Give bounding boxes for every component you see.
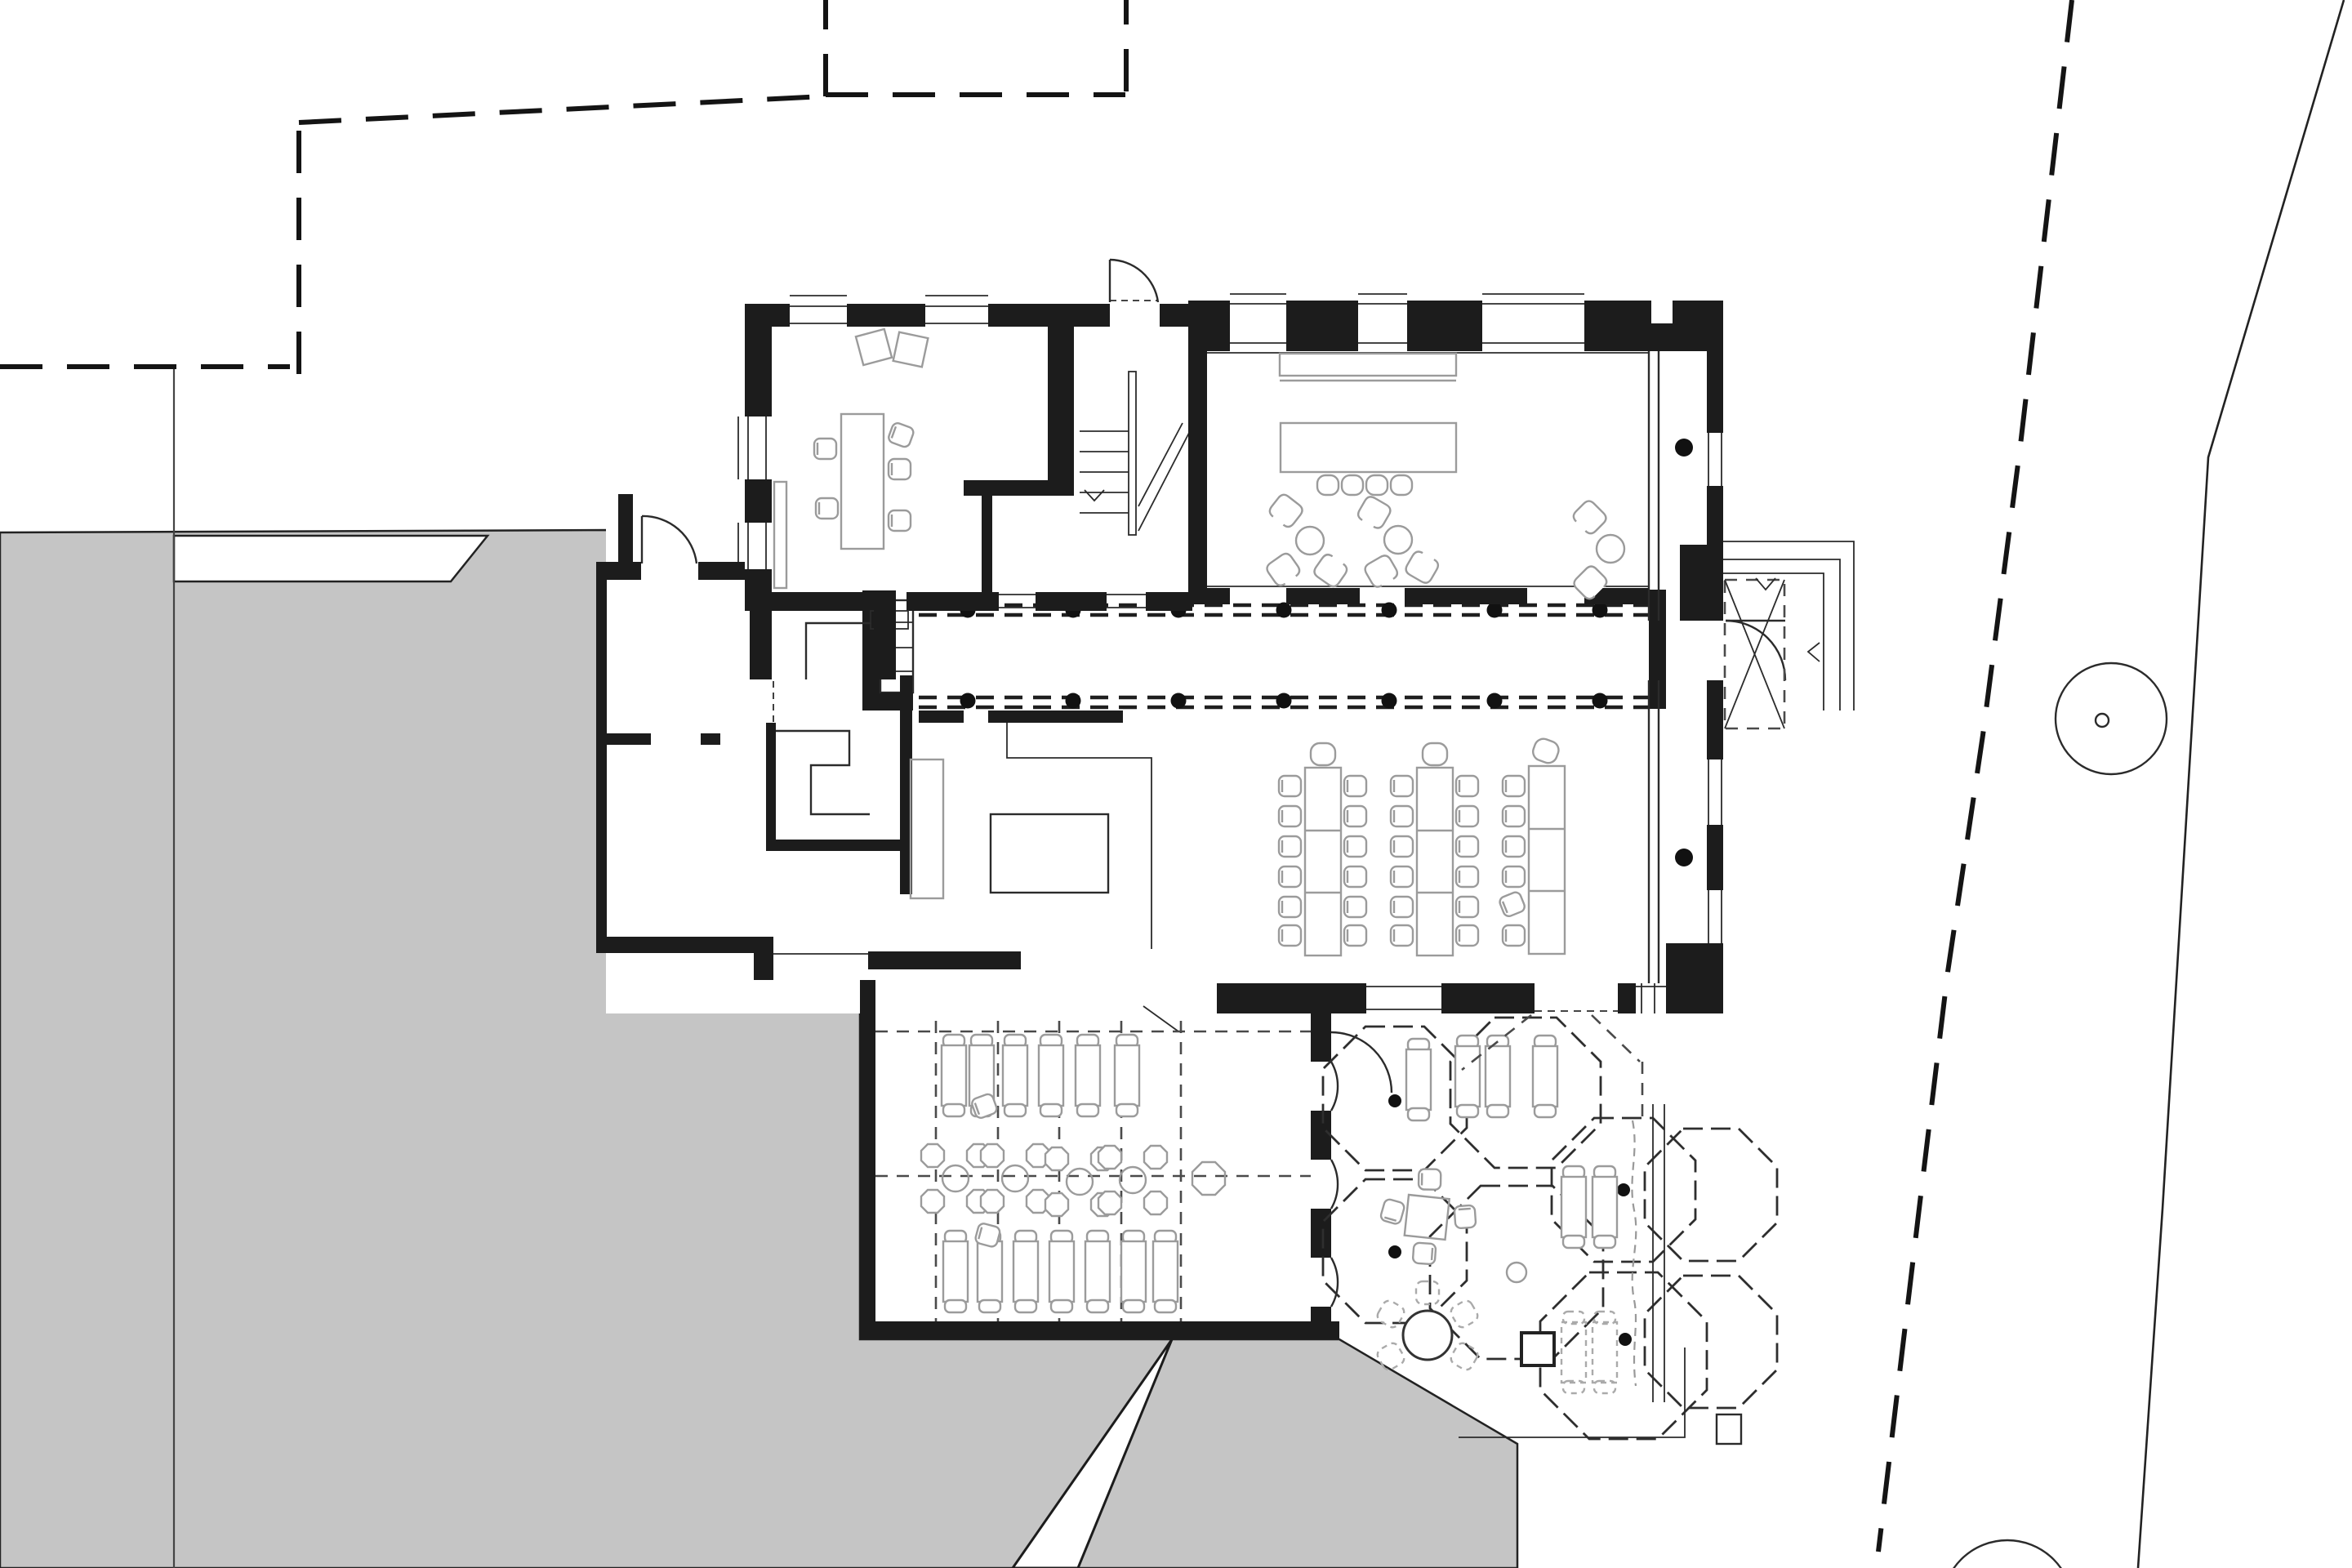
floor-plan-canvas bbox=[0, 0, 2352, 1568]
loggia-column bbox=[1675, 439, 1693, 457]
gray-area-notch bbox=[174, 536, 488, 581]
link-east-wall bbox=[1649, 590, 1666, 709]
terrace-benches-bottom bbox=[943, 1223, 1178, 1312]
square-planter bbox=[1521, 1333, 1554, 1365]
building-floor bbox=[606, 301, 1723, 1013]
loggia-column bbox=[1675, 849, 1693, 866]
